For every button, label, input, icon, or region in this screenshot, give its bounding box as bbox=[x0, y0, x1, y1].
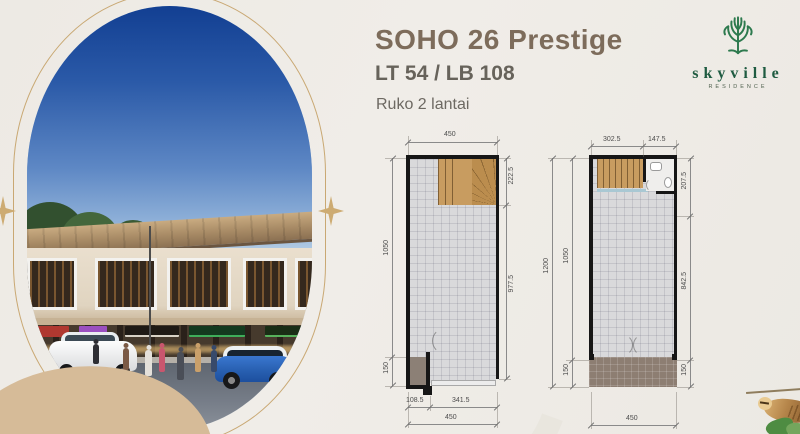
dim-label: 150 bbox=[681, 364, 688, 376]
pedestrian bbox=[145, 350, 152, 376]
dim-label: 108.5 bbox=[406, 397, 424, 404]
window bbox=[95, 258, 157, 310]
brand-tagline: RESIDENCE bbox=[672, 84, 800, 90]
window bbox=[27, 258, 77, 310]
plan2-dim-line-bottom bbox=[591, 425, 676, 426]
plan2-wall-left bbox=[589, 155, 593, 360]
dim-label: 222.5 bbox=[508, 167, 515, 185]
plan2-door-arc bbox=[633, 334, 655, 356]
dim-label: 842.5 bbox=[681, 272, 688, 290]
plan2-bath-wall-h bbox=[656, 191, 677, 194]
plan2-bath-wall-v bbox=[643, 159, 646, 182]
dim-label: 977.5 bbox=[508, 275, 515, 293]
skyville-logo: skyville RESIDENCE bbox=[672, 6, 800, 90]
plan2-wall-top bbox=[589, 155, 677, 159]
pedestrian bbox=[123, 348, 129, 370]
wheel bbox=[223, 372, 240, 389]
shop-sign-script bbox=[125, 326, 179, 337]
plan1-wall-bottom bbox=[406, 385, 428, 389]
pedestrian bbox=[93, 344, 99, 364]
tree-icon bbox=[712, 6, 764, 58]
plan2-stair-rail bbox=[597, 189, 648, 192]
plan1-door-arc bbox=[432, 328, 458, 354]
floor-band bbox=[27, 318, 312, 325]
shop-sign-green2 bbox=[265, 326, 311, 337]
plan2-door-arc bbox=[611, 334, 633, 356]
wheel bbox=[269, 372, 286, 389]
plan2-terrace bbox=[589, 357, 677, 387]
plan1-wall-top bbox=[406, 155, 499, 159]
dim-label: 1050 bbox=[383, 240, 390, 256]
plan1-wall-left bbox=[406, 155, 410, 388]
plan1-porch bbox=[410, 357, 427, 386]
dim-label: 341.5 bbox=[452, 397, 470, 404]
window bbox=[243, 258, 287, 310]
dim-label: 450 bbox=[445, 414, 457, 421]
plan2-bath-door-arc bbox=[646, 178, 660, 192]
plan1-entry-threshold bbox=[431, 380, 496, 386]
unit-type-label: Ruko 2 lantai bbox=[376, 96, 469, 114]
plan1-dim-line-left bbox=[392, 158, 393, 386]
plan1-stairs-winder bbox=[472, 159, 497, 205]
plan1-wall-right bbox=[496, 155, 500, 379]
plan2-corner-stub bbox=[589, 354, 594, 360]
dim-label: 450 bbox=[444, 131, 456, 138]
pedestrian bbox=[211, 350, 217, 372]
dim-label: 1200 bbox=[543, 258, 550, 274]
sink-fixture bbox=[664, 177, 672, 188]
dim-label: 207.5 bbox=[681, 172, 688, 190]
pedestrian bbox=[195, 348, 201, 372]
plan1-stairs bbox=[438, 159, 472, 205]
street-lamp bbox=[149, 226, 151, 348]
area-subtitle: LT 54 / LB 108 bbox=[375, 62, 515, 86]
plan2-dim-line-top bbox=[591, 146, 676, 147]
plan1-dim-line-right bbox=[506, 158, 507, 379]
shop-sign-green bbox=[189, 326, 245, 337]
plan2-dim-line-left-outer bbox=[552, 158, 553, 387]
plan2-dim-line-right bbox=[690, 158, 691, 387]
dim-label: 147.5 bbox=[648, 136, 666, 143]
flyer-canvas: SOHO 26 Prestige LT 54 / LB 108 Ruko 2 l… bbox=[0, 0, 800, 434]
plan1-wall-stub bbox=[426, 352, 430, 388]
dim-label: 302.5 bbox=[603, 136, 621, 143]
plan1-dim-line-bottom1 bbox=[408, 407, 497, 408]
plan2-stairs bbox=[597, 159, 643, 188]
plan1-dim-line-top bbox=[408, 142, 497, 143]
dim-label: 150 bbox=[383, 362, 390, 374]
window bbox=[295, 258, 312, 310]
page-title: SOHO 26 Prestige bbox=[375, 24, 623, 56]
plan1-dim-line-bottom2 bbox=[408, 424, 497, 425]
toilet-fixture bbox=[650, 162, 662, 171]
plan2-wall-right bbox=[674, 155, 678, 360]
brand-name: skyville bbox=[672, 65, 800, 83]
plan2-dim-line-left-inner bbox=[572, 158, 573, 387]
dim-label: 1050 bbox=[563, 248, 570, 264]
dim-label: 450 bbox=[626, 415, 638, 422]
dim-label: 150 bbox=[563, 364, 570, 376]
window bbox=[167, 258, 231, 310]
pedestrian bbox=[177, 352, 184, 380]
pedestrian bbox=[159, 348, 165, 372]
